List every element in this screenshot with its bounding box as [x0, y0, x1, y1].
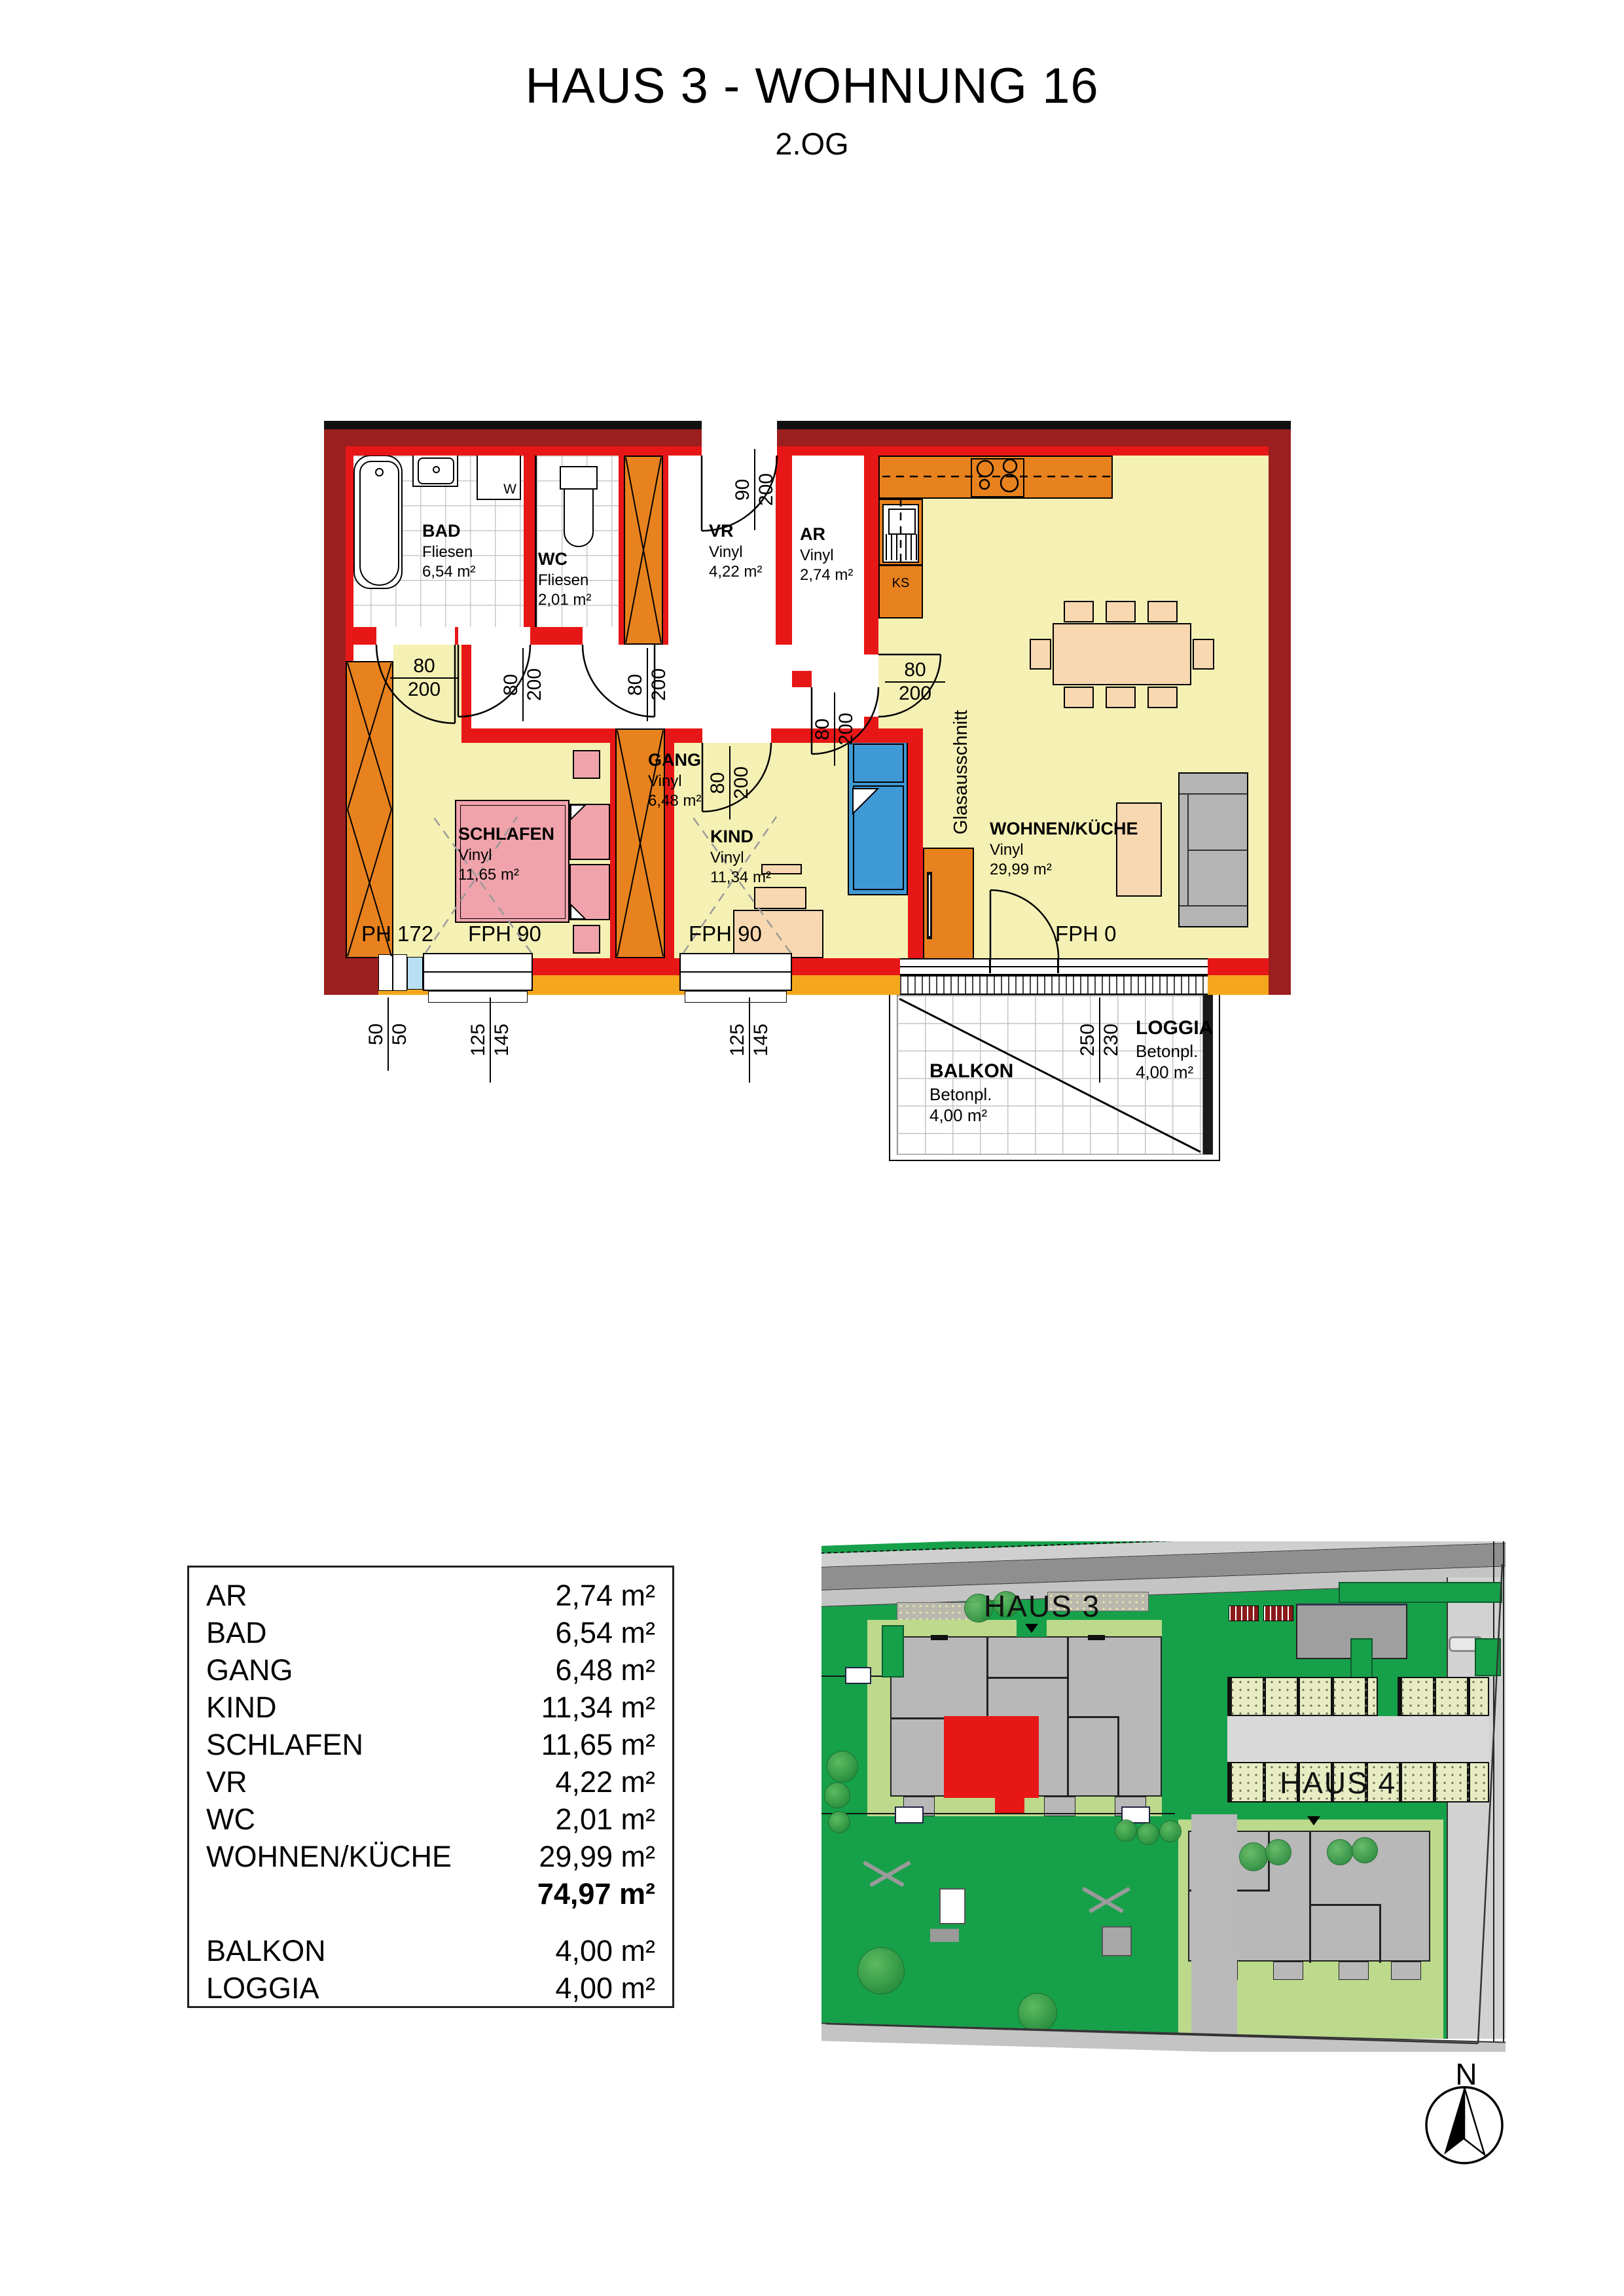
- north-label: N: [1448, 2056, 1485, 2092]
- dim-entrance-door: 90200: [732, 449, 778, 530]
- dining-table: [1053, 623, 1191, 685]
- table-spacer: [206, 1912, 655, 1932]
- dim-ar-door: 80200: [812, 692, 857, 766]
- desk-shelf: [754, 887, 806, 909]
- balcony-stub: [1339, 1962, 1369, 1980]
- balcony-stub: [1391, 1962, 1421, 1980]
- wall: [777, 421, 1291, 430]
- wall: [663, 456, 668, 645]
- wall: [792, 671, 812, 687]
- table-row: KIND11,34 m²: [206, 1689, 655, 1726]
- dim-schlafen-door: 80200: [390, 656, 458, 700]
- wall: [792, 958, 900, 975]
- dim-loggia: 250230: [1077, 997, 1123, 1083]
- room-label-ar: AR Vinyl 2,74 m²: [800, 524, 853, 585]
- wall: [532, 958, 679, 975]
- timber-column: [624, 456, 663, 645]
- wall: [324, 429, 346, 975]
- table-row: WOHNEN/KÜCHE29,99 m²: [206, 1838, 655, 1875]
- wall: [908, 743, 923, 958]
- gate: [895, 1806, 924, 1823]
- parapet-label: FPH 90: [689, 922, 762, 946]
- glass-block: [407, 957, 423, 990]
- pillow: [569, 804, 610, 860]
- wall: [777, 429, 1291, 446]
- parapet-label: PH 172: [361, 922, 433, 946]
- tree: [1265, 1839, 1291, 1865]
- table-row: AR2,74 m²: [206, 1577, 655, 1614]
- dim-niche: 5050: [365, 997, 411, 1071]
- toilet-tank: [560, 466, 598, 490]
- footpath: [1191, 1814, 1237, 2039]
- wall: [864, 456, 878, 655]
- tree: [827, 1751, 858, 1782]
- dim-wc-door: 80200: [624, 648, 670, 721]
- niche-cell: [393, 954, 407, 991]
- driveway: [1227, 1716, 1489, 1762]
- pillow: [569, 864, 610, 920]
- wall: [610, 728, 615, 958]
- tree: [1115, 1820, 1137, 1842]
- wall: [324, 958, 378, 995]
- wall: [455, 627, 458, 645]
- table-row: SCHLAFEN11,65 m²: [206, 1726, 655, 1763]
- table-total-row: 74,97 m²: [206, 1875, 655, 1912]
- tree: [1352, 1837, 1378, 1863]
- sandbox: [1102, 1926, 1132, 1956]
- gate: [845, 1667, 871, 1684]
- table-row: LOGGIA4,00 m²: [206, 1969, 655, 2007]
- table-row: GANG6,48 m²: [206, 1651, 655, 1689]
- room-label-balkon: BALKON Betonpl. 4,00 m²: [929, 1059, 1013, 1126]
- wall: [346, 627, 376, 645]
- tree: [828, 1811, 850, 1833]
- wall: [1269, 429, 1291, 995]
- north-compass: [1426, 2087, 1502, 2163]
- bathroom-sink: [412, 453, 458, 487]
- toilet-bowl: [564, 488, 594, 547]
- table-row: BAD6,54 m²: [206, 1614, 655, 1651]
- haus4-entry-arrow: [1307, 1816, 1320, 1825]
- wall: [324, 421, 702, 430]
- stove: [971, 458, 1024, 497]
- dim-bad-door: 80200: [500, 648, 546, 721]
- chair: [1147, 601, 1178, 622]
- hedge: [882, 1625, 904, 1677]
- bathtub: [353, 455, 403, 589]
- site-plan: HAUS 3: [821, 1541, 1506, 2052]
- terrace-threshold: [900, 975, 1208, 995]
- site-boundary-line: [1493, 1541, 1494, 2045]
- haus3-building: [890, 1636, 1162, 1797]
- parking-row: [1227, 1677, 1378, 1716]
- timber-column: [346, 661, 393, 958]
- wall: [1208, 958, 1269, 975]
- wall: [619, 456, 624, 645]
- dim-window-schlafen: 125145: [467, 997, 513, 1083]
- tree: [1137, 1823, 1159, 1845]
- sofa: [1178, 772, 1248, 927]
- washing-machine-label: W: [503, 482, 516, 497]
- room-label-wohnen: WOHNEN/KÜCHE Vinyl 29,99 m²: [990, 818, 1138, 880]
- fridge-label: KS: [878, 576, 923, 591]
- wall: [346, 446, 702, 456]
- balcony-stub: [1273, 1962, 1303, 1980]
- waste-bins: [1263, 1605, 1293, 1621]
- parking-row: [1398, 1677, 1489, 1716]
- dim-wohnen-door: 80200: [885, 660, 945, 704]
- hedge: [1475, 1638, 1501, 1676]
- chair: [1106, 687, 1136, 708]
- sill-strip: [1208, 975, 1269, 995]
- wall: [674, 728, 702, 743]
- room-label-schlafen: SCHLAFEN Vinyl 11,65 m²: [458, 823, 554, 885]
- room-label-bad: BAD Fliesen 6,54 m²: [422, 520, 475, 582]
- wall: [530, 627, 583, 645]
- wall: [777, 446, 1269, 456]
- tree: [857, 1947, 905, 1994]
- chair: [1106, 601, 1136, 622]
- parapet-label: FPH 90: [468, 922, 541, 946]
- parapet-label: FPH 0: [1055, 922, 1117, 946]
- chair: [1064, 601, 1094, 622]
- wardrobe-cabinet: [923, 848, 974, 961]
- wall: [461, 728, 610, 743]
- niche-cell: [378, 954, 393, 991]
- kitchen-sink-unit: [882, 504, 919, 563]
- chair: [1193, 639, 1214, 670]
- haus3-highlighted-balcony: [995, 1797, 1024, 1814]
- table-row: VR4,22 m²: [206, 1763, 655, 1801]
- hedge: [1339, 1582, 1502, 1603]
- table-row: BALKON4,00 m²: [206, 1932, 655, 1969]
- table-row: WC2,01 m²: [206, 1801, 655, 1838]
- site-boundary-line: [1503, 1541, 1504, 2045]
- floorplan-sheet: HAUS 3 - WOHNUNG 16 2.OG W KS: [0, 0, 1624, 2296]
- window-schlafen: [423, 953, 533, 991]
- window-kind: [679, 953, 792, 991]
- wall: [324, 429, 702, 446]
- nightstand: [573, 750, 600, 779]
- tree: [1239, 1842, 1268, 1871]
- chair: [1147, 687, 1178, 708]
- haus4-label: HAUS 4: [1280, 1765, 1396, 1801]
- room-label-loggia: LOGGIA Betonpl. 4,00 m²: [1136, 1016, 1213, 1083]
- tree: [1327, 1839, 1353, 1865]
- tree: [1018, 1993, 1057, 2032]
- glazing-band: [900, 958, 1208, 975]
- haus3-highlighted-unit: [944, 1716, 1039, 1798]
- dim-window-kind: 125145: [727, 997, 772, 1083]
- page-title: HAUS 3 - WOHNUNG 16: [0, 58, 1624, 115]
- washing-machine: W: [477, 453, 521, 500]
- room-label-gang: GANG Vinyl 6,48 m²: [648, 749, 701, 811]
- bench: [939, 1888, 965, 1924]
- fridge-divider: [878, 564, 923, 566]
- room-label-wc: WC Fliesen 2,01 m²: [538, 548, 591, 610]
- play-item: [930, 1929, 959, 1942]
- haus3-label: HAUS 3: [984, 1588, 1100, 1624]
- room-label-kind: KIND Vinyl 11,34 m²: [710, 826, 771, 888]
- chair: [1064, 687, 1094, 708]
- chair: [1030, 639, 1051, 670]
- area-table: AR2,74 m² BAD6,54 m² GANG6,48 m² KIND11,…: [187, 1566, 674, 2008]
- wall: [524, 456, 537, 627]
- tree: [824, 1782, 850, 1808]
- page-subtitle: 2.OG: [0, 126, 1624, 162]
- wall: [776, 456, 792, 645]
- dim-kind-door: 80200: [707, 746, 753, 819]
- nightstand: [573, 925, 600, 954]
- tree: [1159, 1820, 1182, 1842]
- wall: [461, 645, 471, 728]
- glass-cutout-label: Glasausschnitt: [950, 651, 972, 834]
- waste-bins: [1229, 1605, 1259, 1621]
